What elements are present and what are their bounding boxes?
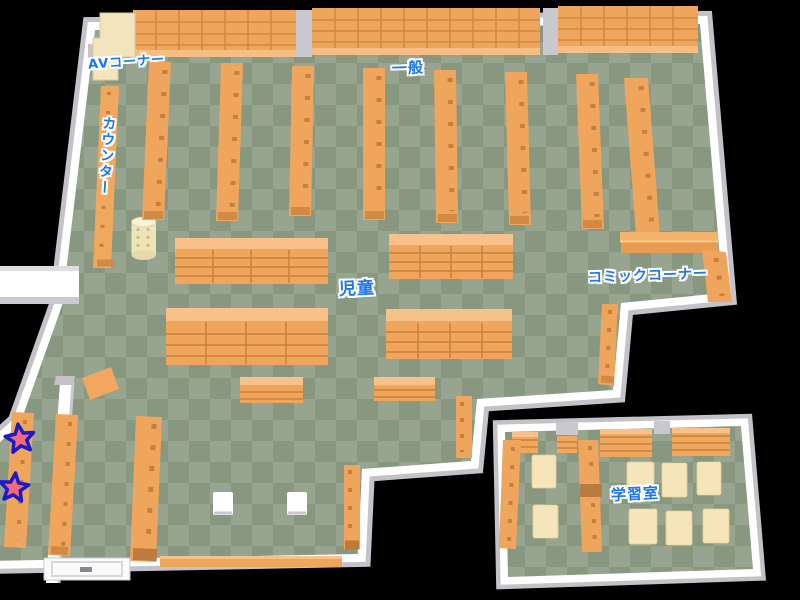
wall-pillar — [543, 8, 558, 55]
door-handle — [80, 567, 92, 572]
area-label-study-room: 学習室 — [611, 486, 660, 504]
study-table — [533, 505, 558, 538]
entrance-door — [44, 558, 130, 580]
study-table — [697, 462, 721, 495]
study-table — [666, 511, 692, 545]
area-label-general: 一般 — [392, 60, 425, 77]
study-table — [662, 463, 687, 497]
floor-map-canvas — [0, 0, 800, 600]
top-wall-shelves — [133, 6, 698, 57]
book-spinner — [132, 217, 157, 260]
study-table — [532, 455, 556, 488]
study-table — [703, 509, 729, 543]
study-door — [654, 421, 670, 434]
study-table — [629, 509, 657, 544]
library-floor-map: AVコーナー 一般 カウンター 児童 コミックコーナー 学習室 — [0, 0, 800, 600]
wall-pillar — [296, 10, 312, 57]
area-label-children: 児童 — [339, 280, 376, 300]
study-door — [556, 423, 578, 435]
left-wall-block — [0, 266, 79, 304]
